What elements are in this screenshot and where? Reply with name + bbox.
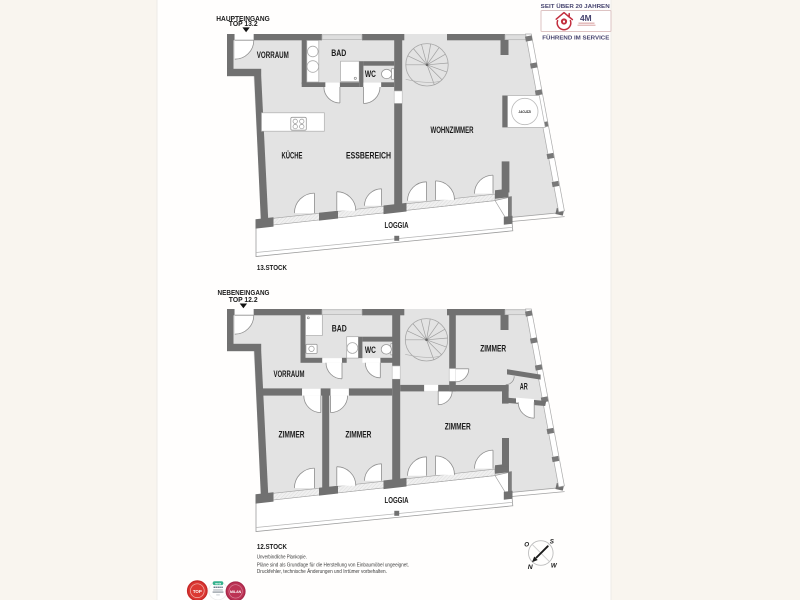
svg-text:Unverbindliche Plankopie.: Unverbindliche Plankopie. (257, 555, 307, 561)
svg-text:13.STOCK: 13.STOCK (257, 265, 287, 272)
svg-text:WOHNZIMMER: WOHNZIMMER (431, 124, 474, 135)
svg-text:BAD: BAD (331, 47, 346, 58)
svg-text:ZIMMER: ZIMMER (279, 429, 305, 440)
svg-text:ZIMMER: ZIMMER (445, 420, 471, 431)
svg-text:SEIT ÜBER 20 JAHREN: SEIT ÜBER 20 JAHREN (541, 3, 610, 10)
svg-text:TOP 12.2: TOP 12.2 (229, 295, 258, 304)
svg-text:AR: AR (520, 381, 528, 391)
svg-text:WC: WC (365, 69, 376, 79)
svg-text:KÜCHE: KÜCHE (282, 150, 303, 161)
svg-text:Druckfehler, technische Änderu: Druckfehler, technische Änderungen und I… (257, 568, 387, 575)
svg-text:ZIMMER: ZIMMER (345, 429, 371, 440)
svg-text:meta: meta (215, 581, 222, 585)
svg-text:ESSBEREICH: ESSBEREICH (346, 150, 391, 161)
svg-text:TOP 13.2: TOP 13.2 (229, 19, 258, 28)
svg-text:ZIMMER: ZIMMER (480, 343, 506, 354)
svg-text:O: O (524, 542, 529, 549)
svg-text:VORRAUM: VORRAUM (257, 49, 289, 60)
svg-text:Pläne sind als Grundlage für d: Pläne sind als Grundlage für die Herstel… (257, 562, 409, 568)
svg-text:MILAN: MILAN (230, 590, 242, 594)
svg-text:FÜHREND IM SERVICE: FÜHREND IM SERVICE (542, 34, 609, 41)
svg-text:WC: WC (365, 345, 376, 355)
svg-text:TOP: TOP (193, 589, 202, 594)
svg-text:VORRAUM: VORRAUM (274, 368, 305, 379)
svg-text:JACUZZI: JACUZZI (519, 110, 532, 114)
svg-text:BAD: BAD (332, 322, 347, 333)
svg-text:12.STOCK: 12.STOCK (257, 544, 287, 551)
svg-text:4M: 4M (580, 13, 592, 23)
